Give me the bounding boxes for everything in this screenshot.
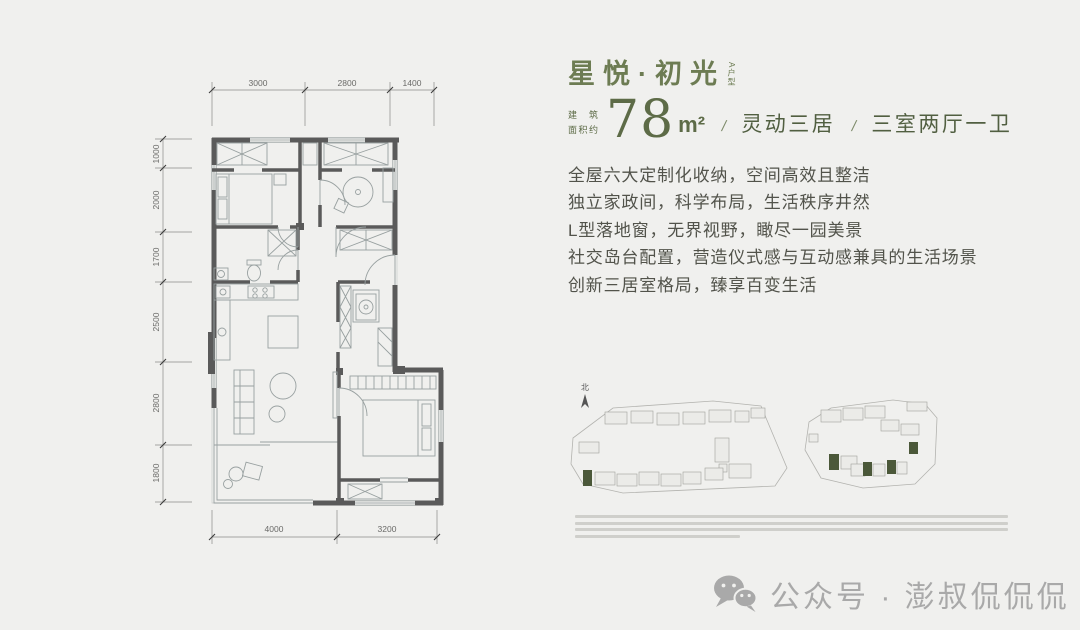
balcony-glazing: [214, 405, 408, 503]
disclaimer-line: [575, 535, 740, 538]
feature-item: 全屋六大定制化收纳，空间高效且整洁: [568, 167, 1020, 184]
dim-label: 1800: [151, 463, 161, 482]
dim-label: 2800: [151, 393, 161, 412]
area-unit: m²: [678, 112, 705, 143]
dim-label: 2800: [338, 78, 357, 88]
poster-canvas: 3000 2800 1400 1000 2000 1700 2500 2800 …: [0, 0, 1080, 630]
dimension-labels: 3000 2800 1400 1000 2000 1700 2500 2800 …: [151, 78, 422, 534]
dim-label: 2000: [151, 190, 161, 209]
dim-label: 1000: [151, 144, 161, 163]
project-title: 星悦·初光: [568, 58, 725, 90]
window-glazing: [212, 138, 443, 505]
dim-label: 2500: [151, 312, 161, 331]
dim-label: 3200: [378, 524, 397, 534]
slash-separator: /: [718, 118, 727, 143]
interior-walls: [212, 138, 441, 505]
dim-label: 4000: [265, 524, 284, 534]
disclaimer-line: [575, 515, 1008, 518]
plan-outline: [212, 138, 443, 503]
site-buildings: [579, 402, 927, 486]
info-panel: 星悦·初光 A户型 建筑 面积约 78 m² / 灵动三居 / 三室两厅一卫 全…: [568, 58, 1020, 304]
disclaimer-line: [575, 522, 1008, 525]
dim-label: 1400: [403, 78, 422, 88]
furniture: [214, 143, 436, 499]
feature-item: L型落地窗，无界视野，瞰尽一园美景: [568, 222, 1020, 239]
dim-label: 3000: [249, 78, 268, 88]
feature-item: 创新三居室格局，臻享百变生活: [568, 277, 1020, 294]
slash-separator: /: [849, 118, 858, 143]
wall-stubs: [208, 223, 443, 505]
area-prefix-line1: 建筑: [568, 108, 602, 121]
exterior-walls: [212, 138, 443, 505]
feature-item: 社交岛台配置，营造仪式感与互动感兼具的生活场景: [568, 249, 1020, 266]
floorplan-drawing: 3000 2800 1400 1000 2000 1700 2500 2800 …: [150, 70, 480, 560]
north-label: 北: [581, 383, 589, 392]
spec-rooms: 三室两厅一卫: [871, 108, 1012, 143]
spec-row: 建筑 面积约 78 m² / 灵动三居 / 三室两厅一卫: [568, 98, 1020, 142]
disclaimer-fine-print: [575, 515, 1008, 541]
area-value: 78: [606, 98, 674, 142]
feature-list: 全屋六大定制化收纳，空间高效且整洁 独立家政间，科学布局，生活秩序井然 L型落地…: [568, 167, 1020, 294]
title-row: 星悦·初光 A户型: [568, 58, 1020, 90]
north-arrow: 北: [581, 383, 589, 408]
unit-type-tag: A户型: [727, 62, 735, 86]
watermark-text: 公众号 · 澎叔侃侃侃: [770, 572, 1070, 616]
area-prefix: 建筑 面积约: [568, 108, 602, 143]
spec-layout: 灵动三居: [741, 108, 835, 143]
feature-item: 独立家政间，科学布局，生活秩序井然: [568, 194, 1020, 211]
siteplan-map: 北: [563, 378, 993, 508]
dim-label: 1700: [151, 247, 161, 266]
area-prefix-line2: 面积约: [568, 123, 602, 136]
watermark: 公众号 · 澎叔侃侃侃: [712, 572, 1070, 616]
disclaimer-line: [575, 528, 1008, 531]
wechat-icon: [712, 573, 758, 615]
